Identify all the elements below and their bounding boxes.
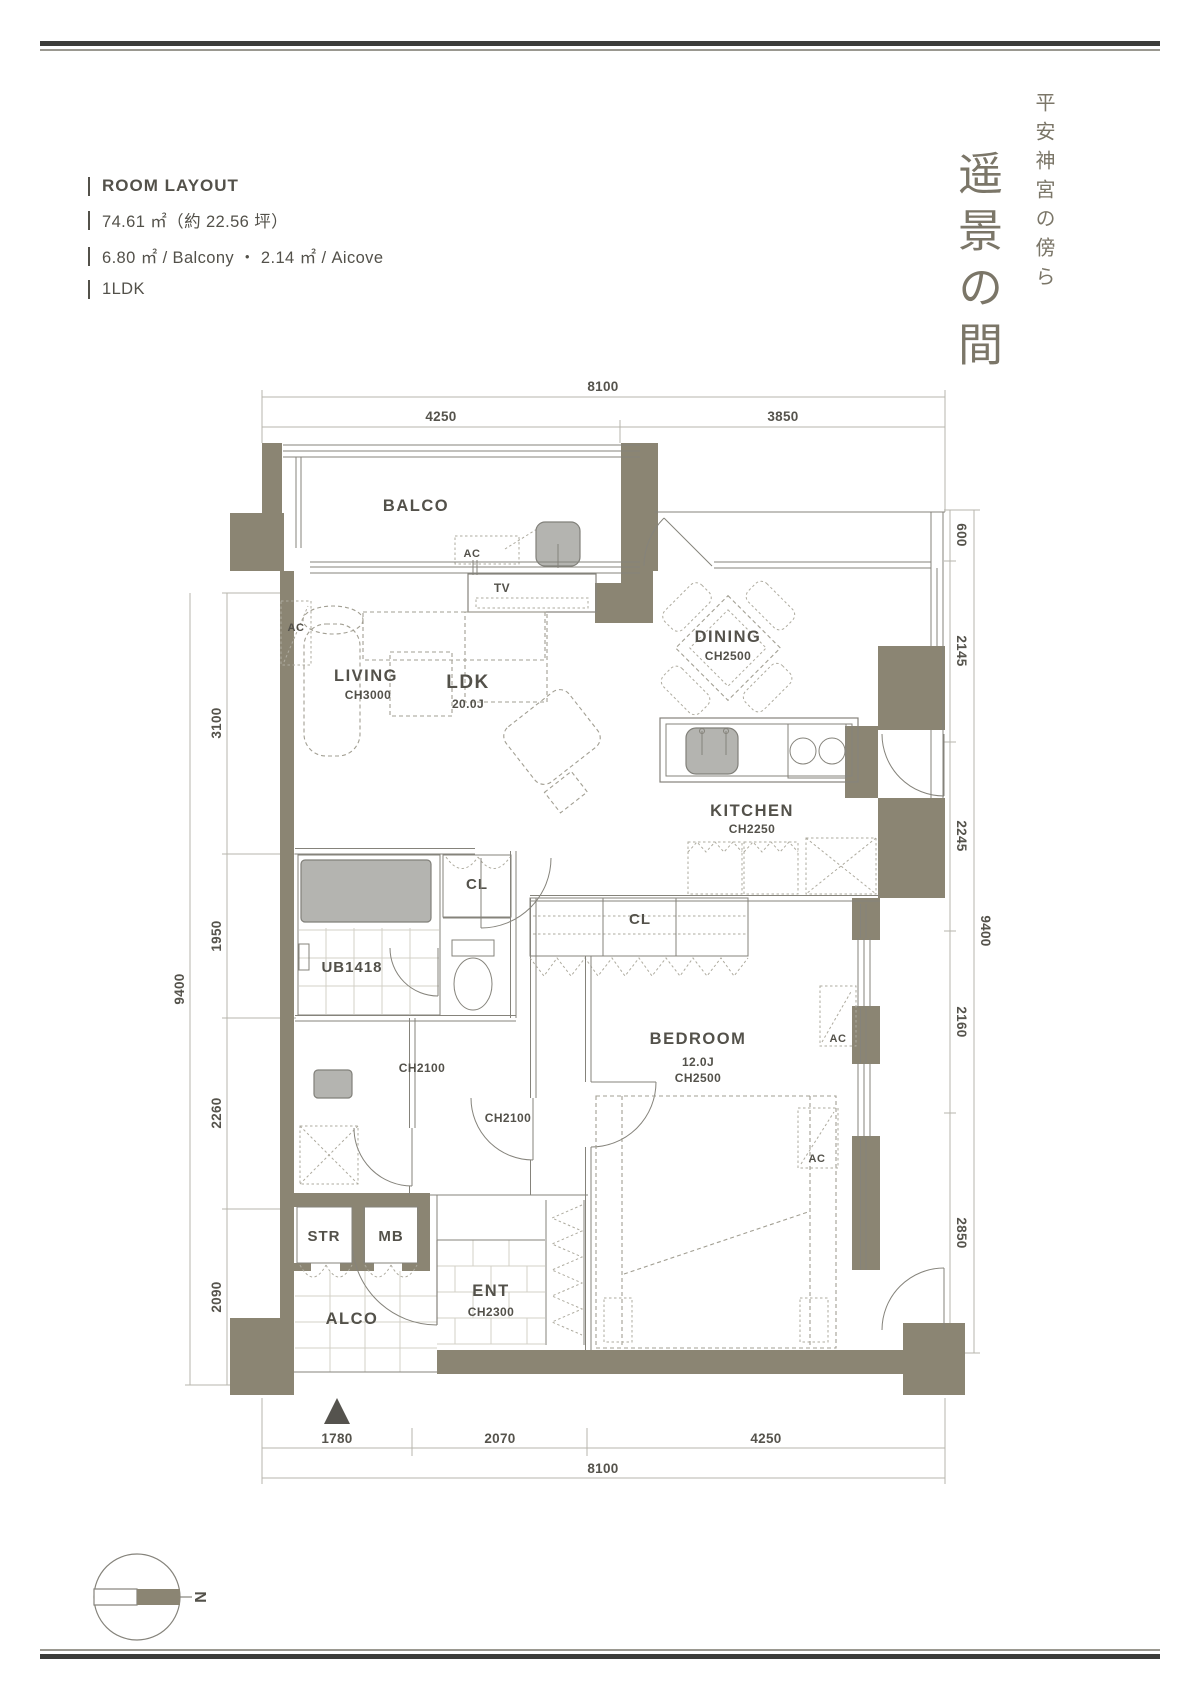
- room-label-dining: DINING: [695, 628, 762, 646]
- dim-left-total: 9400: [172, 973, 187, 1004]
- ac-label-bedroom-1: AC: [830, 1033, 847, 1045]
- tv-board: [468, 574, 596, 612]
- dim-right-2: 2145: [954, 635, 969, 666]
- entrance-zone: STR MB ENT CH2300: [294, 1195, 584, 1424]
- toilet: [454, 958, 492, 1010]
- balcony-zone: AC BALCO: [283, 445, 640, 568]
- ldk-size: 20.0J: [452, 697, 484, 711]
- dim-left-2: 1950: [209, 920, 224, 951]
- room-label-closet-1: CL: [466, 876, 488, 893]
- toilet-tank: [452, 940, 494, 956]
- dim-bottom-3: 4250: [750, 1431, 781, 1446]
- ch-dining: CH2500: [705, 649, 751, 663]
- dim-left-1: 3100: [209, 707, 224, 738]
- shoe-cabinet: [552, 1205, 582, 1335]
- ac-label-living: AC: [288, 622, 305, 634]
- dim-left-4: 2090: [209, 1281, 224, 1312]
- room-label-kitchen: KITCHEN: [710, 802, 794, 820]
- tv-label: TV: [494, 581, 510, 595]
- dim-right-5: 2850: [954, 1217, 969, 1248]
- ch-washroom: CH2100: [399, 1061, 445, 1075]
- bedroom-zone: CL BEDROOM 12.0J CH2500: [530, 896, 944, 1351]
- sofa-ottoman: [390, 652, 452, 716]
- north-label: N: [191, 1591, 208, 1603]
- entrance-arrow-marker: [324, 1398, 350, 1424]
- room-label-alcove: ALCO: [326, 1310, 379, 1328]
- dim-left-3: 2260: [209, 1097, 224, 1128]
- dim-top-total: 8100: [587, 379, 618, 394]
- room-label-unit-bath: UB1418: [321, 959, 382, 976]
- dim-top-right: 3850: [767, 409, 798, 424]
- dim-bottom-1: 1780: [321, 1431, 352, 1446]
- dim-top-left: 4250: [425, 409, 456, 424]
- kitchen-cabinet: [688, 842, 742, 894]
- room-label-ldk: LDK: [446, 672, 490, 693]
- ch-hall: CH2100: [485, 1111, 531, 1125]
- ac-label-bedroom-2: AC: [809, 1153, 826, 1165]
- armchair: [499, 685, 624, 813]
- room-label-entrance: ENT: [472, 1282, 510, 1300]
- bathtub: [301, 860, 431, 922]
- dim-bottom-total: 8100: [587, 1461, 618, 1476]
- room-label-living: LIVING: [334, 667, 398, 685]
- floorplan-drawing: 8100 4250 3850 1780 2070 4250 8100 9400 …: [0, 0, 1200, 1698]
- floorplan-sheet: ROOM LAYOUT 74.61 ㎡（約 22.56 坪） 6.80 ㎡ / …: [0, 0, 1200, 1698]
- dim-right-4: 2160: [954, 1006, 969, 1037]
- room-label-balcony: BALCO: [383, 497, 449, 515]
- ch-bedroom: CH2500: [675, 1071, 721, 1085]
- dim-bottom-2: 2070: [484, 1431, 515, 1446]
- room-label-bedroom: BEDROOM: [650, 1030, 747, 1048]
- sofa-back: [363, 612, 545, 660]
- room-label-closet-2: CL: [629, 911, 651, 928]
- washroom-hall-zone: CH2100 CH2100: [300, 898, 588, 1195]
- ch-kitchen: CH2250: [729, 822, 775, 836]
- ac-label-balcony: AC: [464, 548, 481, 560]
- shower-fixture: [299, 944, 309, 970]
- bedroom-size: 12.0J: [682, 1055, 714, 1069]
- dim-right-total: 9400: [978, 915, 993, 946]
- kitchen-cabinet: [744, 842, 798, 894]
- ch-living: CH3000: [345, 688, 391, 702]
- kitchen-sink: [686, 728, 738, 774]
- compass-needle-north: [137, 1589, 180, 1605]
- stove: [788, 724, 846, 778]
- room-label-storage: STR: [308, 1228, 341, 1245]
- dim-right-1: 600: [954, 523, 969, 546]
- compass: N: [94, 1554, 208, 1640]
- room-label-meter-box: MB: [378, 1228, 403, 1245]
- bathroom-zone: UB1418 CL: [295, 849, 551, 1022]
- compass-needle-tail: [94, 1589, 137, 1605]
- wash-basin: [314, 1070, 352, 1098]
- dim-right-3: 2245: [954, 820, 969, 851]
- sofa-cushion: [303, 606, 363, 634]
- ch-entrance: CH2300: [468, 1305, 514, 1319]
